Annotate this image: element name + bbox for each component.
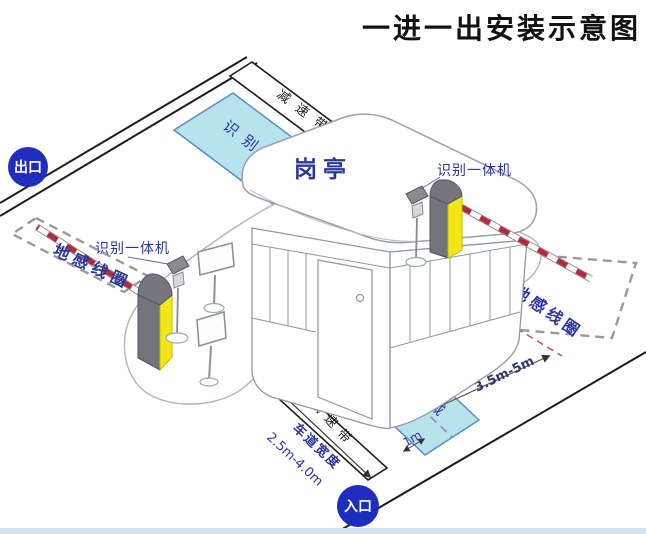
- entrance-barrier-machine-front: [448, 196, 462, 258]
- camera-pole-base: [406, 258, 426, 267]
- exit-camera-label: 识别一体机: [95, 241, 170, 257]
- booth-label: 岗亭: [294, 156, 352, 183]
- bottom-edge-strip: [0, 528, 646, 534]
- exit-barrier-machine-front: [160, 295, 172, 370]
- booth-door: [318, 260, 372, 419]
- board-base: [200, 378, 218, 386]
- page-title: 一进一出安装示意图: [362, 12, 641, 45]
- entrance-barrier-machine-side: [430, 196, 448, 258]
- exit-badge-label: 出口: [14, 159, 42, 176]
- entrance-badge: 入口: [337, 485, 379, 527]
- camera-pole-base: [166, 333, 188, 343]
- entrance-badge-label: 入口: [344, 499, 372, 515]
- board-base: [204, 304, 224, 313]
- parking-install-diagram: 减速带 识别区域 地感线圈 识别区域 减速带 车道宽度 2.5m-4.0m 3.…: [0, 0, 646, 534]
- camera-pole: [416, 218, 417, 260]
- exit-barrier-machine-side: [138, 294, 160, 370]
- entrance-camera-label: 识别一体机: [437, 163, 512, 179]
- camera-pole: [177, 288, 178, 336]
- board-pole: [214, 275, 215, 306]
- exit-camera-leader-line: [128, 257, 168, 264]
- exit-badge: 出口: [8, 147, 48, 187]
- diagram-svg: 减速带 识别区域 地感线圈 识别区域 减速带 车道宽度 2.5m-4.0m 3.…: [0, 0, 646, 534]
